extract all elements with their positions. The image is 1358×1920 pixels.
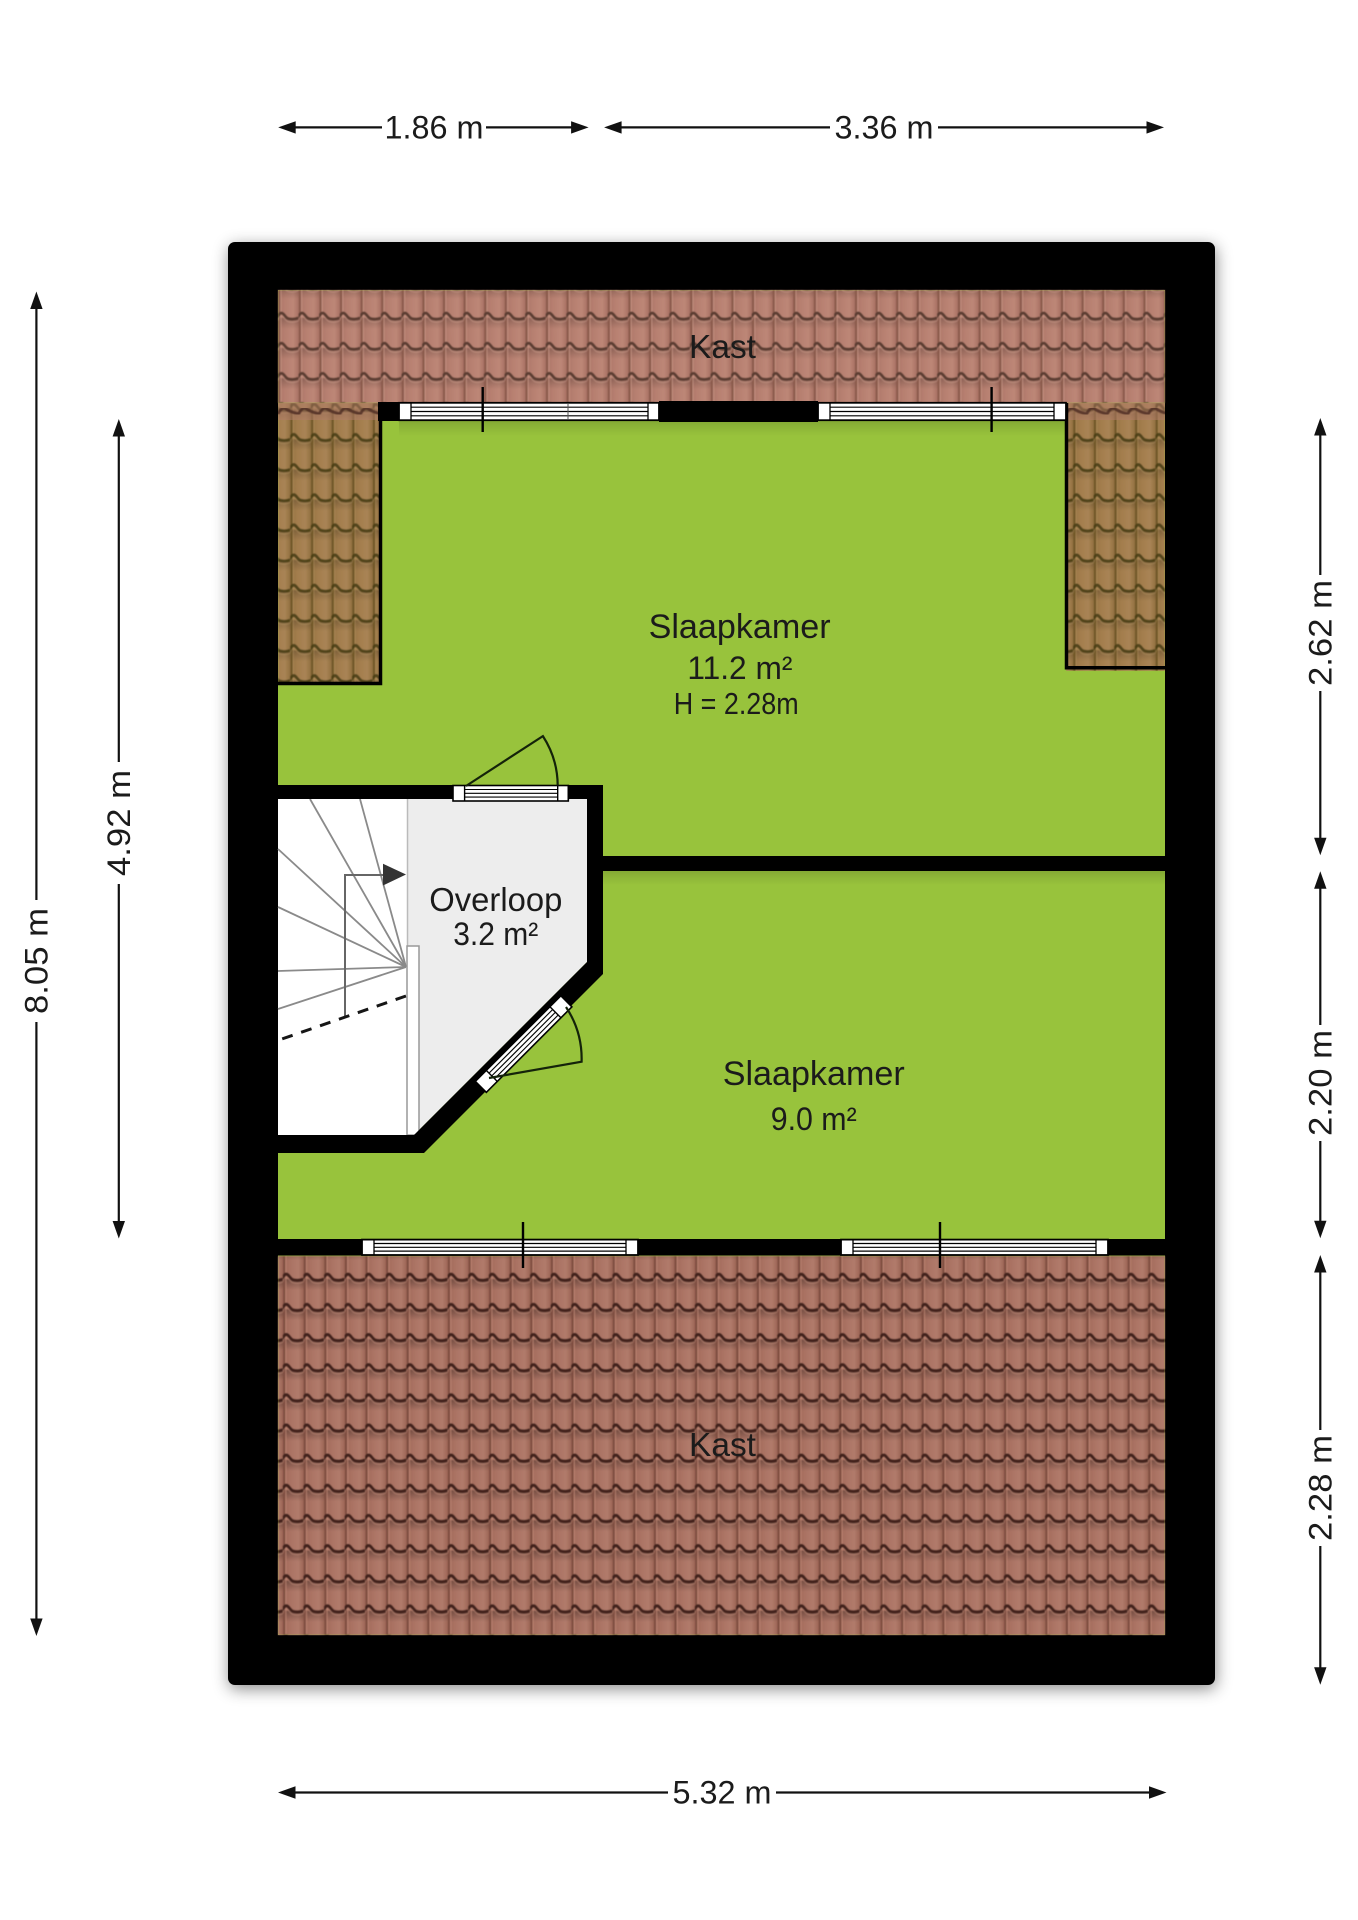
svg-text:Kast: Kast (689, 1426, 756, 1463)
svg-text:11.2 m²: 11.2 m² (687, 650, 792, 686)
svg-text:Slaapkamer: Slaapkamer (723, 1055, 905, 1093)
svg-text:8.05 m: 8.05 m (19, 908, 55, 1014)
svg-text:Overloop: Overloop (429, 881, 562, 918)
svg-text:H = 2.28m: H = 2.28m (674, 686, 799, 721)
svg-text:4.92 m: 4.92 m (101, 770, 137, 876)
svg-text:2.62 m: 2.62 m (1303, 580, 1339, 686)
svg-text:5.32 m: 5.32 m (673, 1775, 772, 1811)
svg-text:1.86 m: 1.86 m (385, 110, 484, 146)
svg-text:3.2 m²: 3.2 m² (453, 916, 538, 952)
svg-text:Kast: Kast (689, 328, 756, 365)
svg-text:2.28 m: 2.28 m (1303, 1435, 1339, 1541)
svg-text:9.0 m²: 9.0 m² (771, 1101, 857, 1137)
svg-text:2.20 m: 2.20 m (1303, 1030, 1339, 1136)
svg-text:Slaapkamer: Slaapkamer (649, 608, 831, 646)
svg-text:3.36 m: 3.36 m (835, 110, 934, 146)
